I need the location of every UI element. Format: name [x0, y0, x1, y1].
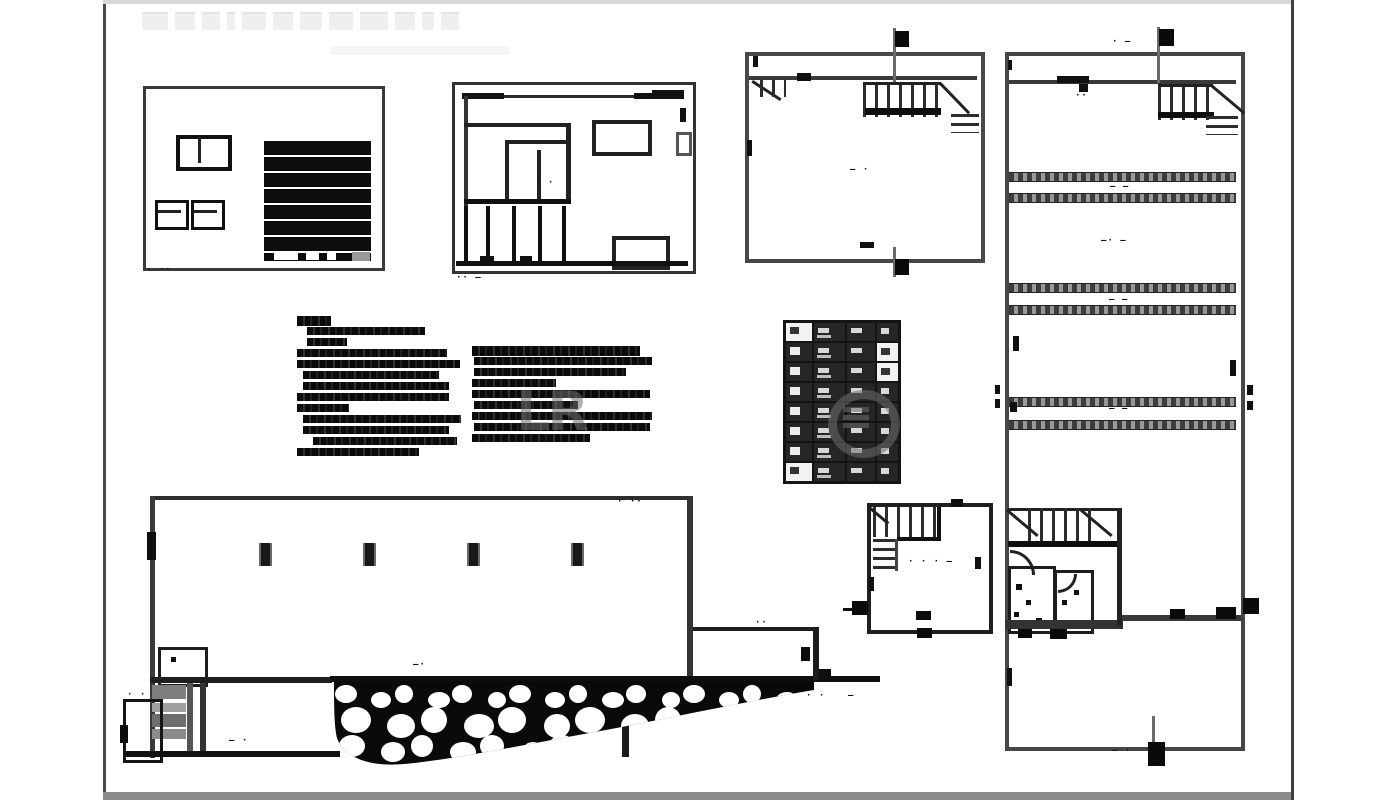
ghost-title-block: [227, 12, 235, 30]
schedule-cell: [847, 343, 875, 361]
stone: [381, 742, 405, 762]
basement-room-label: – ·: [229, 737, 248, 746]
hatched-wall-band: [1009, 305, 1236, 315]
stone: [698, 714, 728, 738]
elevation-right-wall: [687, 496, 693, 680]
hatched-wall-band: [1009, 193, 1236, 203]
fixture-dot: [1074, 590, 1079, 595]
section-room-top: [505, 140, 570, 144]
elevation-roof-line: [150, 496, 692, 500]
front-elevation-window-2: [155, 200, 189, 230]
schedule-cell: [847, 463, 875, 481]
right-annex-caption: ··: [755, 619, 768, 628]
plan-upper-stair-rail: [865, 108, 941, 115]
stone: [395, 685, 413, 703]
note-line: [303, 382, 449, 390]
garage-door-slot: [306, 252, 319, 260]
stone: [411, 735, 433, 757]
section-flag-top: [1159, 29, 1174, 46]
note-line: [303, 426, 449, 434]
basement-annex-tick: [120, 725, 128, 743]
schedule-cell: [814, 363, 845, 381]
stone: [575, 707, 605, 733]
tall-plan-room3-label: – —: [1109, 296, 1128, 305]
note-line: [303, 371, 439, 379]
door-tick: [1170, 609, 1185, 619]
watermark-bar: [843, 415, 869, 420]
stone-wall-caption: –·: [413, 661, 426, 670]
schedule-cell: [847, 323, 875, 341]
section-ceiling-cap-right: [634, 93, 684, 99]
stone: [335, 685, 357, 703]
section-inner-label: · ·: [535, 179, 554, 188]
stone: [602, 692, 624, 708]
schedule-cell: [786, 463, 812, 481]
dimension-tick: [995, 385, 1000, 394]
small-plan-top-tick: [951, 499, 963, 507]
ghost-title-block: [175, 12, 195, 30]
small-plan-right-tick: [975, 557, 981, 569]
dimension-tick: [995, 399, 1000, 408]
stone: [371, 692, 391, 708]
schedule-cell: [877, 363, 898, 381]
ghost-title-block: [202, 12, 220, 30]
stone: [545, 692, 565, 708]
schedule-cell: [877, 323, 898, 341]
small-plan-side-treads: [873, 539, 897, 571]
plan-upper-wall-seg: [797, 73, 811, 81]
front-elevation-window-1: [176, 135, 232, 171]
hatched-wall-band: [1009, 172, 1236, 182]
stone: [683, 685, 705, 703]
schedule-cell: [786, 383, 812, 401]
tall-plan-top-label: · –: [1112, 38, 1131, 47]
stone: [498, 707, 526, 733]
stone: [776, 692, 798, 708]
stone: [509, 685, 531, 703]
note-line: [307, 338, 347, 346]
section-flag-top: [895, 31, 909, 47]
note-line: [297, 393, 449, 401]
note-line: [303, 415, 461, 423]
tall-plan-room2-label: –· —: [1101, 237, 1127, 246]
garage-door-slot: [327, 252, 336, 260]
tall-plan-wall-tick: [1007, 668, 1012, 686]
ghost-title-block: [441, 12, 459, 30]
roof-vent: [363, 543, 376, 566]
fixture-dot: [1014, 612, 1019, 617]
stone: [387, 714, 415, 738]
ground-label-a: · ·: [806, 692, 825, 701]
note-line: [307, 327, 425, 335]
section-mid-wall: [566, 123, 571, 203]
plan-upper-room-label: – ·: [850, 166, 869, 175]
section-flag-bottom: [895, 259, 909, 275]
section-floor-1: [464, 123, 570, 127]
watermark-bar: [843, 407, 869, 412]
tall-plan-door-label: ··: [1075, 92, 1088, 101]
hatched-wall-band: [1009, 283, 1236, 293]
stone-foundation-wall: [332, 680, 818, 772]
fixture-dot: [1026, 600, 1031, 605]
door-bump: [1018, 629, 1032, 638]
stone: [621, 714, 649, 738]
note-line: [474, 368, 626, 376]
section-door-jamb: [512, 206, 516, 262]
ground-label-b: –: [848, 692, 854, 701]
door-bump: [1050, 629, 1067, 639]
stone: [569, 685, 587, 703]
watermark-text: LR: [516, 380, 586, 443]
cad-sheet-screenshot: · ·· · · ·· – – · ·· · –: [0, 0, 1400, 800]
stone: [341, 707, 371, 733]
small-plan-left-marker: [852, 601, 868, 615]
note-line: [297, 404, 349, 412]
plan-upper-door-tick: [753, 56, 758, 67]
schedule-cell: [814, 463, 845, 481]
stone: [544, 714, 570, 738]
watermark-ring-bars: [843, 407, 869, 428]
schedule-cell: [786, 343, 812, 361]
ground-end-tick: [818, 669, 831, 676]
ghost-title-subbar: [330, 46, 510, 55]
section-room-left-wall: [505, 140, 509, 202]
front-elevation-caption: · ··: [146, 266, 172, 275]
garage-door-slot: [274, 252, 298, 260]
tall-plan-heavy-wall: [1005, 620, 1123, 629]
dimension-tick: [1247, 401, 1253, 410]
section-floor-2: [464, 199, 571, 204]
stone: [339, 735, 365, 757]
small-plan-left-tick: [869, 577, 874, 591]
tall-plan-left-door-tick: [1008, 60, 1012, 70]
small-plan-bottom-bump: [917, 628, 932, 638]
section-door-jamb: [464, 206, 468, 262]
window-1-mullion: [198, 137, 201, 163]
schedule-cell: [786, 403, 812, 421]
ghost-title-row: [142, 12, 459, 30]
ghost-title-block: [142, 12, 168, 30]
tall-plan-landing: [1206, 116, 1238, 135]
schedule-cell: [847, 363, 875, 381]
section-right-tick: [680, 108, 686, 122]
stone: [719, 692, 739, 708]
note-line: [313, 437, 457, 445]
ghost-title-block: [422, 12, 434, 30]
window-2-rail: [157, 210, 181, 213]
garage-door-endcap: [352, 252, 370, 261]
tall-plan-room1-label: – —: [1110, 183, 1129, 192]
dimension-tick: [1247, 385, 1253, 395]
stone: [452, 685, 472, 703]
section-flag-bottom: [1148, 742, 1165, 766]
plan-upper-landing: [951, 114, 979, 133]
ghost-title-block: [395, 12, 415, 30]
tall-plan-vertical-wall: [1117, 508, 1122, 626]
roof-vent: [571, 543, 584, 566]
roof-vent: [467, 543, 480, 566]
tall-plan-room4-label: – —: [1109, 405, 1128, 414]
stone: [626, 685, 646, 703]
note-line: [297, 448, 419, 456]
tall-plan-door-seg: [1057, 76, 1089, 83]
elevation-step-block: [152, 685, 186, 699]
ghost-title-block: [273, 12, 293, 30]
small-plan-stair-treads: [873, 507, 937, 537]
stone: [464, 714, 494, 738]
tall-plan-wall-tick: [1010, 402, 1017, 412]
tall-plan-wall-tick: [1230, 360, 1236, 376]
ghost-title-block: [329, 12, 353, 30]
stone: [662, 692, 680, 708]
note-line: [297, 316, 331, 326]
stone: [655, 707, 681, 733]
elevation-left-wall-tick: [147, 532, 156, 560]
stone: [450, 742, 476, 762]
section-right-shelf: [676, 132, 692, 156]
note-line: [297, 360, 460, 368]
tall-plan-bottom-stair-rail: [1008, 541, 1122, 547]
section-door-jamb: [486, 206, 490, 262]
notes-block-left: [297, 316, 467, 466]
plan-upper-corner-stair-treads: [760, 80, 786, 97]
small-plan-center-label: · · · –: [908, 558, 953, 567]
stone: [549, 735, 575, 757]
bottom-band: [103, 792, 1291, 800]
small-plan-stair-wall-h: [897, 537, 941, 541]
schedule-cell: [877, 463, 898, 481]
fixture-dot: [1062, 600, 1067, 605]
tall-plan-bottom-label: – ·: [1112, 747, 1131, 756]
section-ground-sill: [456, 261, 688, 266]
stone: [488, 692, 506, 708]
small-plan-stair-wall-v: [937, 507, 941, 541]
garage-door: [264, 141, 371, 261]
elevation-gray-joint: [187, 683, 193, 757]
schedule-cell: [814, 343, 845, 361]
note-line: [472, 346, 640, 356]
schedule-cell: [786, 443, 812, 461]
elevation-top-caption: · ··: [617, 498, 643, 507]
basement-room-floor: [125, 751, 340, 757]
stone: [743, 685, 761, 703]
schedule-cell: [814, 323, 845, 341]
section-room-divider: [537, 150, 541, 202]
right-annex-wall: [813, 627, 819, 680]
window-3-rail: [193, 210, 217, 213]
section-door-jamb: [562, 206, 566, 262]
right-annex-door-tick: [801, 647, 810, 661]
fixture-dot: [1016, 584, 1022, 590]
note-line: [297, 349, 447, 357]
roof-vent: [259, 543, 272, 566]
top-band: [103, 0, 1291, 4]
section-ceiling-cap-left: [462, 93, 504, 99]
schedule-cell: [786, 363, 812, 381]
annex-dot: [171, 657, 176, 662]
section-door-jamb: [538, 206, 542, 262]
schedule-cell: [786, 323, 812, 341]
section-flag-stem: [1152, 716, 1155, 744]
basement-annex-caption: · ·: [127, 691, 146, 700]
plan-upper-bottom-tick: [860, 242, 874, 248]
tall-plan-wall-tick: [1013, 336, 1019, 351]
ghost-title-block: [300, 12, 322, 30]
stone: [428, 692, 450, 708]
ghost-title-block: [242, 12, 266, 30]
stone: [522, 742, 544, 762]
plan-upper-left-wall-tick: [747, 140, 752, 156]
schedule-cell: [786, 423, 812, 441]
ghost-title-block: [360, 12, 388, 30]
small-plan-side-joint: [895, 539, 898, 571]
schedule-cell: [877, 343, 898, 361]
stone: [732, 707, 760, 733]
small-plan-bottom-tick: [916, 611, 931, 620]
basement-room-left-wall: [200, 683, 206, 757]
hatched-wall-band: [1009, 420, 1236, 430]
cross-section-caption: ·· –: [456, 274, 482, 283]
door-tick: [1216, 607, 1236, 619]
watermark-bar: [843, 423, 869, 428]
section-upper-window: [592, 120, 652, 156]
stone: [480, 735, 504, 757]
front-elevation-window-3: [191, 200, 225, 230]
section-flag-right: [1243, 598, 1259, 614]
note-line: [474, 357, 652, 365]
elevation-ledge: [150, 677, 332, 683]
stone: [421, 707, 447, 733]
